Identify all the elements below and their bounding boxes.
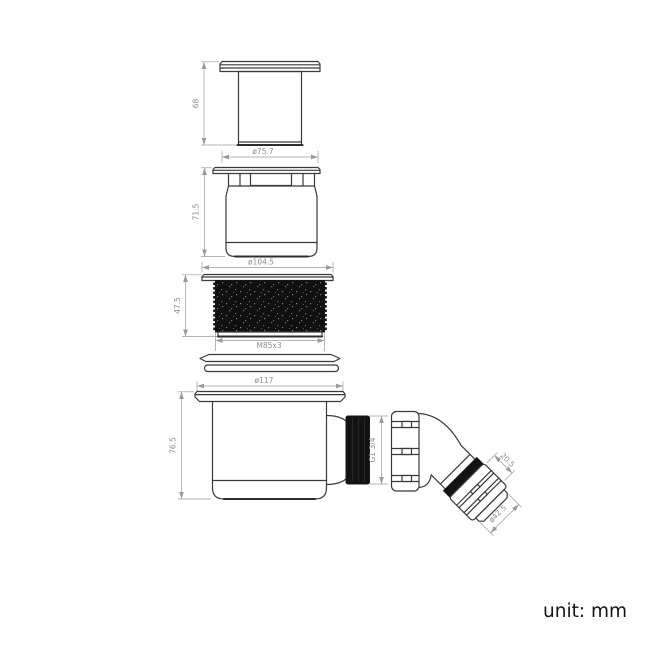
dim-locknut-height: 47.5	[173, 275, 217, 337]
cap-height-label: 68	[192, 99, 201, 109]
part-insert-body	[213, 168, 320, 257]
part-trap-body	[195, 392, 370, 500]
part-elbow-swivel-nut	[392, 412, 420, 492]
body-height-label: 76.5	[169, 437, 178, 454]
part-elbow-outlet-45: 20.5 ø42.5	[429, 426, 542, 539]
outlet-dome-bottom	[327, 479, 347, 485]
drawing-canvas: 68 ø75.7 71.5 ø104.5	[0, 0, 650, 650]
nut-groove-3	[392, 476, 419, 482]
locknut-flange-diameter-label: ø104.5	[248, 258, 274, 267]
outlet-dome-top	[327, 416, 347, 422]
insert-height-label: 71.5	[192, 203, 201, 220]
thread-knurl-texture	[216, 281, 325, 333]
shower-drain-technical-drawing: 68 ø75.7 71.5 ø104.5	[0, 0, 650, 650]
dim-insert-height: 71.5	[192, 168, 226, 257]
dim-elbow-outlet-diameter: ø42.5	[480, 494, 522, 536]
outlet-thread-label: G1 3/4	[368, 437, 377, 462]
part-elbow-bend	[419, 414, 461, 488]
dim-cap-diameter: ø75.7	[222, 147, 318, 163]
unit-label: unit: mm	[543, 601, 627, 622]
part-top-cap	[220, 62, 320, 146]
outlet-thread-band	[346, 416, 370, 484]
dim-locknut-flange-diameter: ø104.5	[202, 258, 333, 273]
dim-body-flange-diameter: ø117	[197, 376, 343, 391]
body-flange-diameter-label: ø117	[255, 376, 274, 385]
dim-outlet-thread: G1 3/4	[368, 416, 388, 484]
elbow-seal-ring	[444, 458, 484, 498]
elbow-outlet-diameter-label: ø42.5	[487, 503, 509, 525]
dim-cap-height: 68	[192, 62, 238, 145]
elbow-nut-length-label: 20.5	[498, 451, 516, 469]
locknut-height-label: 47.5	[173, 297, 182, 314]
part-threaded-locknut	[202, 275, 333, 337]
locknut-thread-label: M85x3	[256, 341, 281, 350]
nut-groove-2	[392, 449, 419, 455]
cap-diameter-label: ø75.7	[252, 147, 274, 156]
nut-groove-1	[392, 422, 419, 428]
part-tapered-washer	[200, 355, 340, 362]
dim-body-height: 76.5	[169, 392, 212, 499]
part-flat-washer	[205, 365, 339, 372]
